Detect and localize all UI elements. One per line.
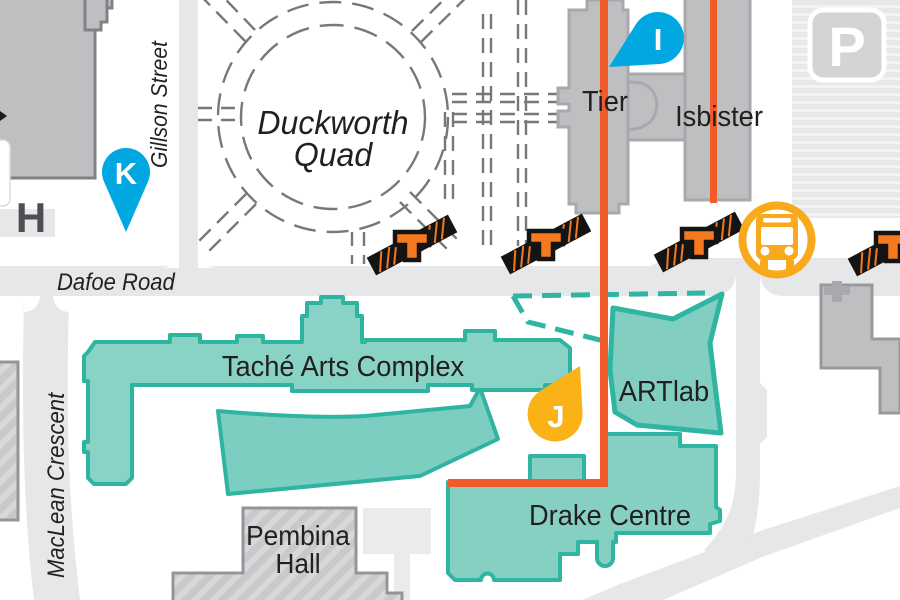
svg-text:Hall: Hall [275,547,320,579]
svg-text:MacLean Crescent: MacLean Crescent [42,391,69,578]
svg-text:H: H [16,194,46,241]
svg-text:J: J [547,399,564,434]
svg-text:Gillson Street: Gillson Street [146,40,172,168]
svg-text:I: I [654,22,663,57]
svg-text:Taché Arts Complex: Taché Arts Complex [222,350,464,382]
svg-text:K: K [115,156,138,191]
svg-text:P: P [828,15,865,78]
svg-text:Isbister: Isbister [675,100,763,132]
svg-text:Tier: Tier [582,85,628,117]
svg-text:Dafoe Road: Dafoe Road [57,268,176,295]
svg-text:Drake Centre: Drake Centre [529,499,691,531]
svg-text:ARTlab: ARTlab [619,375,709,407]
svg-text:Quad: Quad [294,137,373,174]
